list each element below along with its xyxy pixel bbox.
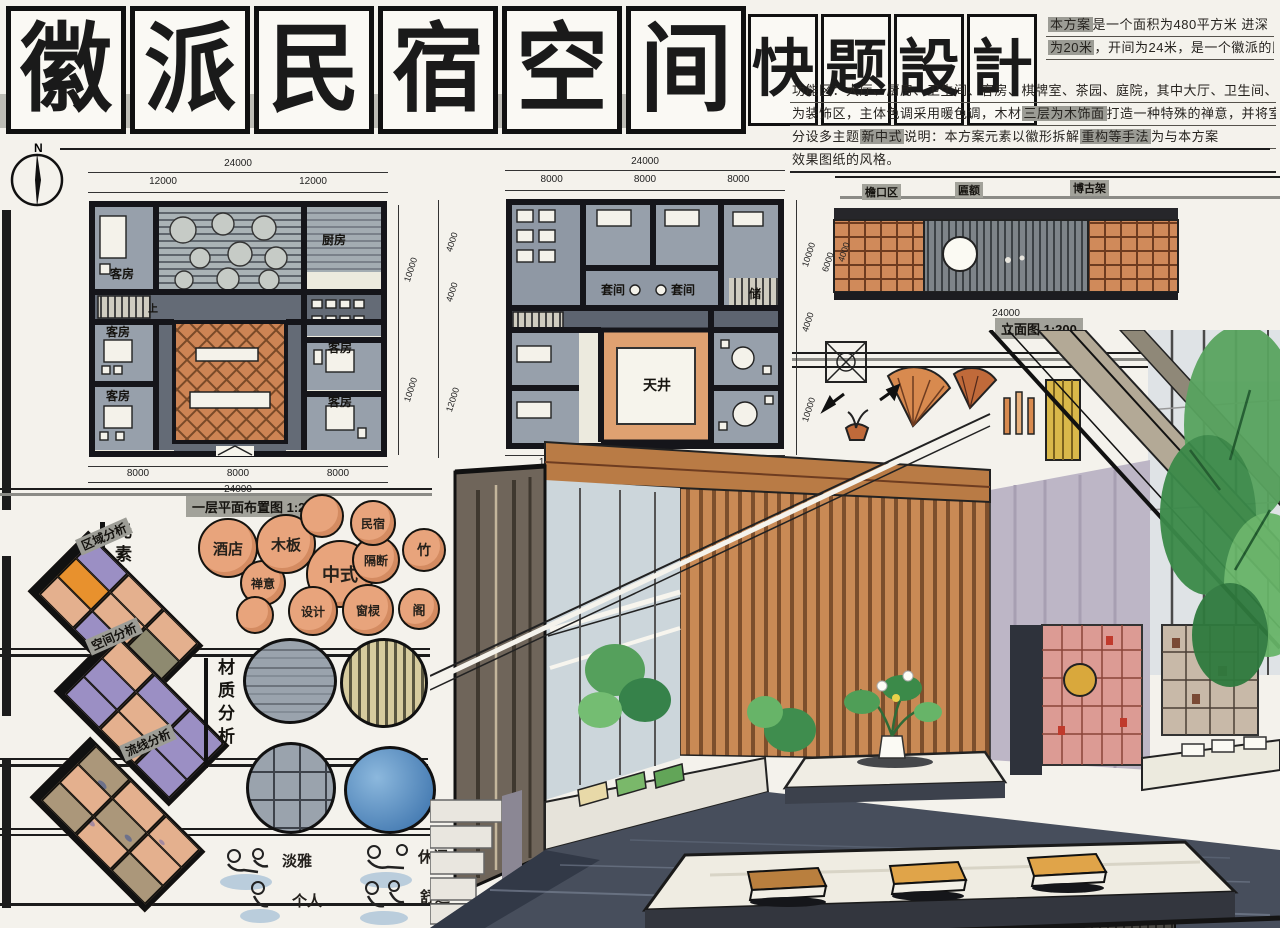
element-bubble: 窗棂 — [342, 584, 394, 636]
design-board: 徽 派 民 宿 空 间 快 题 設 計 本方案是一个面积为480平方米 进深 为… — [0, 0, 1280, 928]
elevation-tag: 匾额 — [955, 182, 983, 198]
window-bench-right — [1142, 737, 1280, 790]
edge-bar — [2, 556, 11, 716]
room-label: 储 — [749, 286, 761, 301]
concept-word: 个人 — [292, 890, 322, 911]
material-sample-tile — [246, 742, 336, 834]
plan2-right-dim: 10000 — [800, 241, 817, 268]
brief-text: 打造一种特殊的禅意，并将室外景观引入室内， — [1107, 106, 1276, 121]
room-label: 客房 — [327, 394, 352, 409]
interior-perspective-rendering — [430, 330, 1280, 928]
elevation-tag: 檐口区 — [862, 184, 901, 200]
brief-highlight: 本方案 — [1048, 17, 1093, 32]
plan1-dim-bottom-total: 24000 — [88, 484, 388, 495]
stair-label: 上 — [148, 302, 158, 315]
left-window-wall — [545, 480, 680, 800]
material-analysis-label: 材质分析 — [204, 658, 237, 768]
brief-text: ，开间为24米，是一个徽派的民宿设计 — [1094, 40, 1274, 55]
edge-bar — [2, 758, 11, 908]
title-char: 宿 — [392, 22, 484, 119]
compass-needle-icon — [35, 153, 41, 207]
title-char: 派 — [144, 22, 236, 119]
plan1-side-dim: 10000 — [402, 376, 419, 403]
moon-window-icon — [943, 237, 977, 271]
brief-text: 为装饰区，主体色调采用暖色调，木材 — [792, 106, 1022, 121]
room-label: 套间 — [600, 282, 625, 297]
room-label: 客房 — [105, 324, 130, 339]
main-tea-table — [645, 842, 1280, 928]
plan2-dim-top: 800080008000 — [505, 174, 785, 185]
lattice-screen-wall — [1042, 625, 1142, 765]
plan1-dim-top: 1200012000 — [88, 176, 388, 187]
plan1-floor-plan: 客房 厨房 客房 客房 客房 客房 上 — [88, 200, 388, 463]
wood-slat-screen — [680, 470, 990, 760]
brief-text: 是一个面积为480平方米 进深 — [1093, 17, 1269, 32]
design-brief-intro: 本方案是一个面积为480平方米 进深 为20米，开间为24米，是一个徽派的民宿设… — [1046, 14, 1274, 60]
material-sample-bamboo — [340, 638, 428, 728]
brief-highlight: 重构等手法 — [1080, 129, 1152, 144]
room-label: 套间 — [670, 282, 695, 297]
title-char: 空 — [516, 22, 608, 119]
element-bubble — [236, 596, 274, 634]
seat-mat — [748, 868, 826, 907]
material-sample-water — [344, 746, 436, 834]
room-label: 客房 — [327, 340, 352, 355]
element-bubble: 设计 — [288, 586, 338, 636]
brief-highlight: 三层为木饰面 — [1022, 106, 1107, 121]
title-char: 间 — [640, 22, 732, 119]
room-label: 厨房 — [322, 232, 346, 247]
ruled-line — [835, 176, 1280, 178]
seat-mat — [1028, 854, 1106, 893]
brief-text: 为与本方案 — [1151, 129, 1219, 144]
zone-diagram-3 — [36, 742, 199, 907]
elevation-tag: 博古架 — [1070, 180, 1109, 196]
plan2-dim-top-total: 24000 — [505, 156, 785, 167]
design-brief-body: 功能区：大厅、厨房、卫生间、客房、棋牌室、茶园、庭院，其中大厅、卫生间、仓库棋牌… — [790, 80, 1276, 173]
seat-mat — [890, 862, 966, 901]
brief-text: 功能区：大厅、厨房、卫生间、客房、棋牌室、茶园、庭院，其中大厅、卫生间、仓库棋牌… — [792, 83, 1276, 98]
ruled-line — [840, 196, 1280, 199]
element-bubble — [300, 494, 344, 538]
title-char: 民 — [268, 22, 360, 119]
plan1-dim-bottom: 800080008000 — [88, 468, 388, 479]
elevation-drawing — [832, 208, 1180, 309]
dark-portal — [1010, 625, 1042, 775]
plan1-dim-top-total: 24000 — [88, 158, 388, 169]
plan2-side-dim: 4000 — [444, 231, 460, 253]
concept-word: 淡雅 — [282, 850, 312, 871]
figure-sketch — [238, 878, 288, 928]
material-sample-stone — [243, 638, 337, 724]
brief-text: 说明：本方案元素以徽形拆解 — [904, 129, 1080, 144]
plan2-side-dim: 4000 — [444, 281, 460, 303]
ruled-line — [60, 148, 1270, 150]
gold-moon-icon — [1064, 664, 1096, 696]
north-label: N — [34, 141, 43, 155]
main-title: 徽 派 民 宿 空 间 — [6, 6, 746, 134]
edge-bar — [2, 210, 11, 510]
brief-highlight: 为20米 — [1048, 40, 1094, 55]
element-bubble: 民宿 — [350, 500, 396, 546]
title-char: 徽 — [20, 22, 112, 119]
room-label: 客房 — [105, 388, 130, 403]
brief-text: 分设多主题 — [792, 129, 860, 144]
room-label: 客房 — [109, 266, 134, 281]
brief-text: 效果图纸的风格。 — [792, 152, 900, 167]
plan1-side-dim: 10000 — [402, 256, 419, 283]
north-compass: N — [8, 140, 66, 215]
brief-highlight: 新中式 — [860, 129, 905, 144]
figure-sketch — [356, 876, 416, 928]
